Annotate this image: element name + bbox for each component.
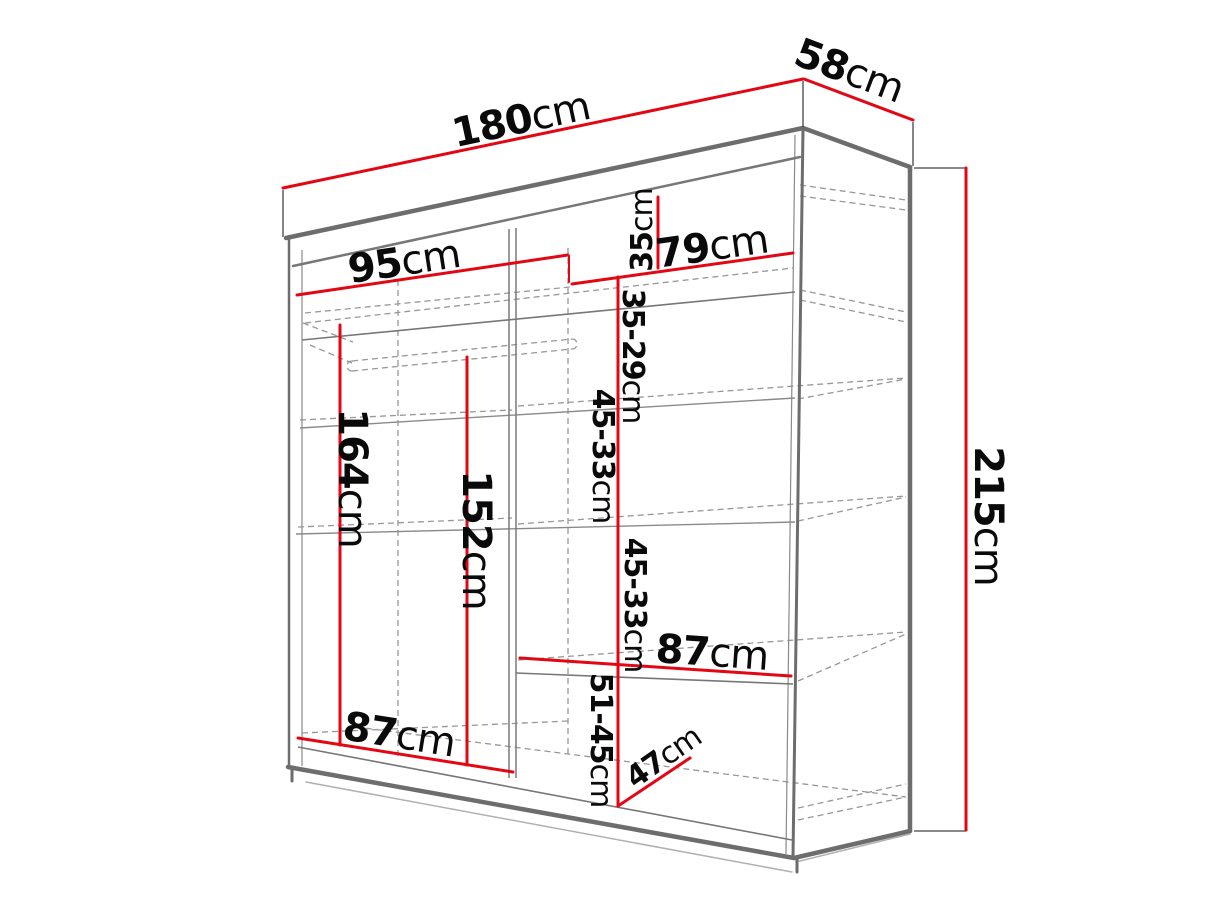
dim-upper-gap-label: 35-29cm: [617, 289, 647, 424]
dim-top-shelf-label: 35cm: [628, 188, 658, 271]
dim-right-shelf-width-label: 87cm: [654, 629, 769, 677]
dim-gap-1-label: 45-33cm: [587, 389, 617, 524]
dim-rail-height-label: 152cm: [456, 470, 496, 609]
dim-hanging-height-label: 164cm: [332, 408, 372, 547]
dim-gap-2-label: 45-33cm: [619, 538, 649, 673]
wardrobe-diagram: 180cm 58cm 215cm 95cm 79cm 35cm 35-29cm …: [0, 0, 1230, 923]
dim-height-label: 215cm: [968, 446, 1008, 585]
dim-bottom-gap-label: 51-45cm: [585, 673, 615, 808]
